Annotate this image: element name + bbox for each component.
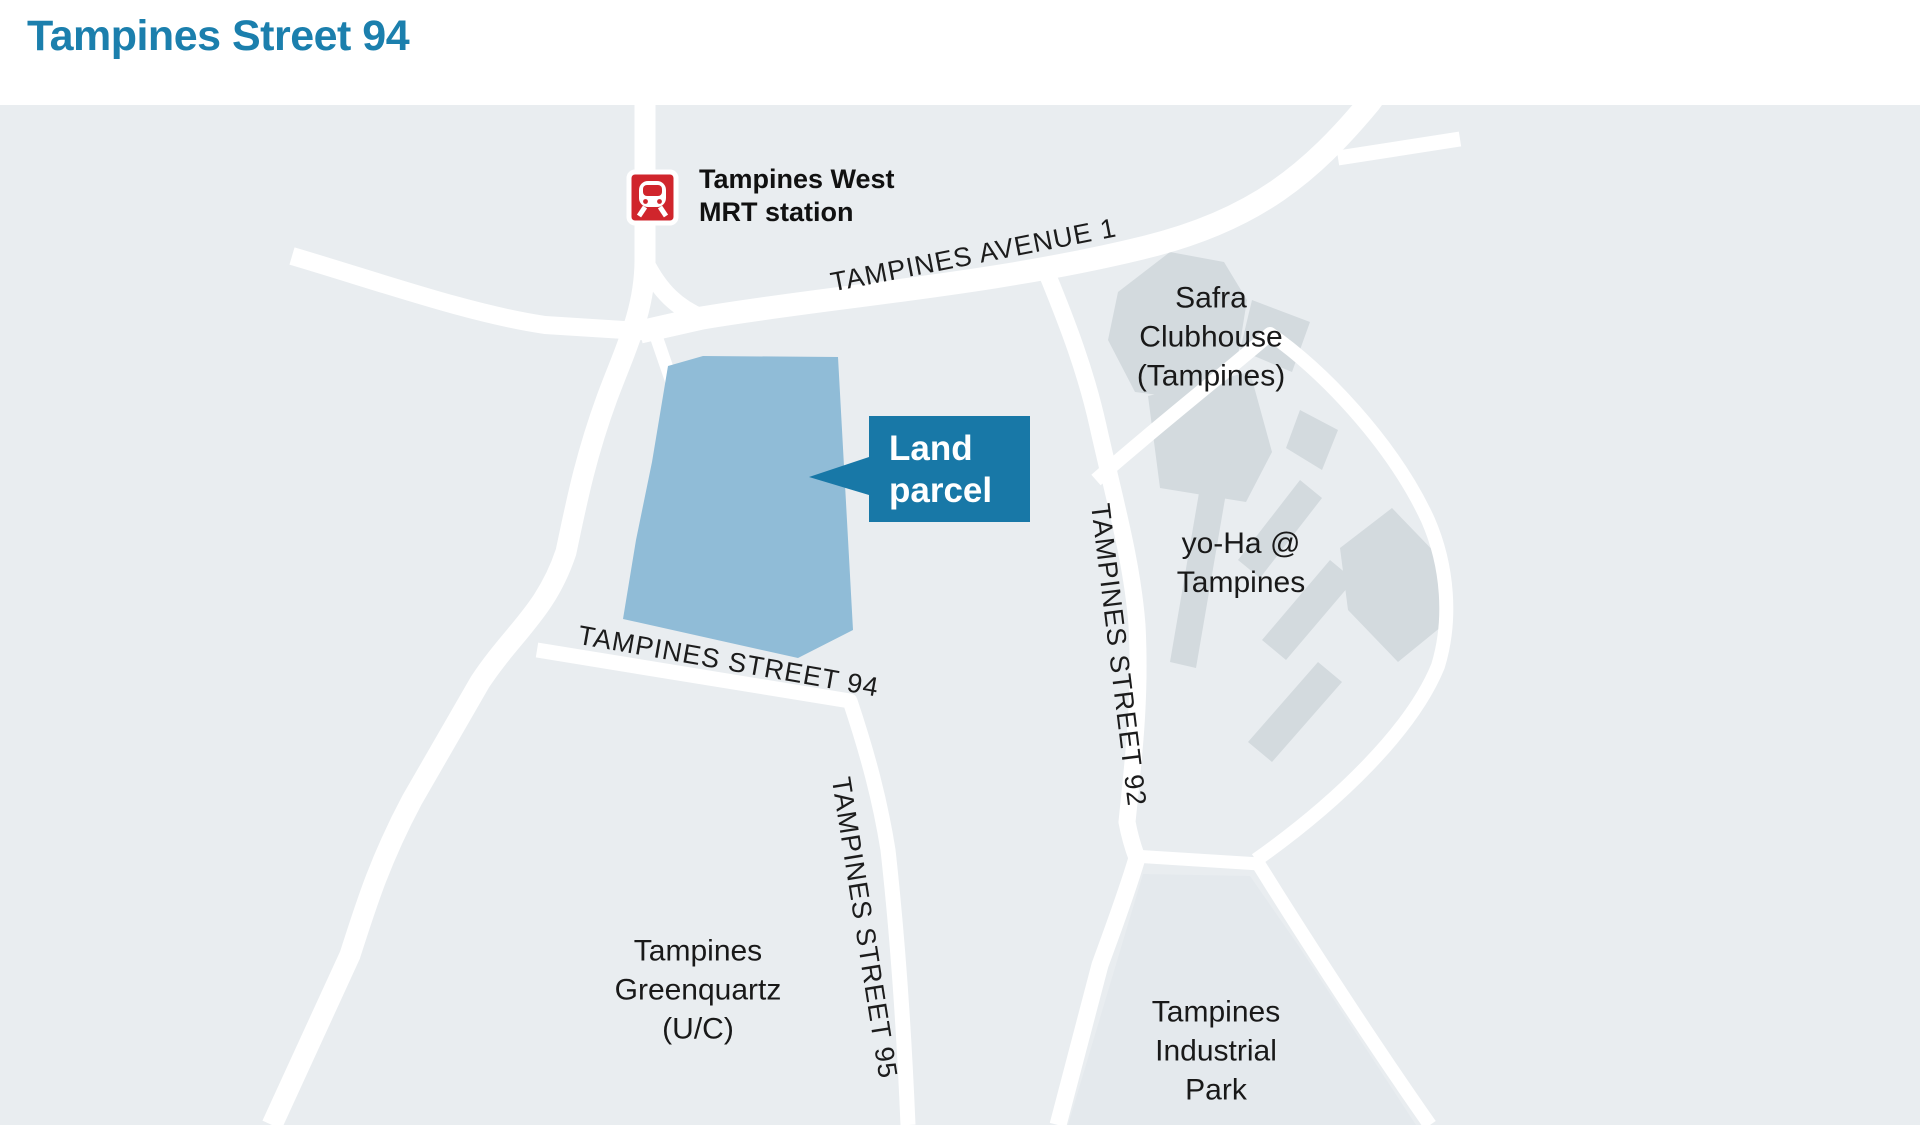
land-parcel-callout: Land parcel xyxy=(869,416,1030,522)
place-label-tampines-greenquartz: Tampines Greenquartz (U/C) xyxy=(615,932,782,1049)
page: Tampines Street 94 xyxy=(0,0,1920,1125)
map-canvas xyxy=(0,0,1920,1125)
place-label-line: (U/C) xyxy=(615,1010,782,1049)
place-label-line: Clubhouse xyxy=(1137,318,1285,357)
place-label-yoha-tampines: yo-Ha @ Tampines xyxy=(1177,524,1305,602)
callout-line1: Land xyxy=(889,428,1030,470)
road-junction-connector xyxy=(1133,856,1260,864)
mrt-station-label-line2: MRT station xyxy=(699,196,895,229)
mrt-icon-light-right xyxy=(657,199,662,204)
place-label-line: Industrial xyxy=(1152,1032,1280,1071)
place-label-line: Tampines xyxy=(615,932,782,971)
mrt-station-label: Tampines West MRT station xyxy=(699,163,895,229)
mrt-train-icon xyxy=(629,172,676,223)
place-label-line: (Tampines) xyxy=(1137,357,1285,396)
mrt-station-label-line1: Tampines West xyxy=(699,163,895,196)
place-label-line: Tampines xyxy=(1177,563,1305,602)
place-label-safra-clubhouse: Safra Clubhouse (Tampines) xyxy=(1137,279,1285,396)
place-label-line: yo-Ha @ xyxy=(1177,524,1305,563)
callout-line2: parcel xyxy=(889,470,1030,512)
mrt-icon-light-left xyxy=(643,199,648,204)
mrt-icon-windshield xyxy=(643,185,662,196)
place-label-tampines-industrial-park: Tampines Industrial Park xyxy=(1152,993,1280,1110)
place-label-line: Greenquartz xyxy=(615,971,782,1010)
place-label-line: Park xyxy=(1152,1071,1280,1110)
place-label-line: Safra xyxy=(1137,279,1285,318)
place-label-line: Tampines xyxy=(1152,993,1280,1032)
